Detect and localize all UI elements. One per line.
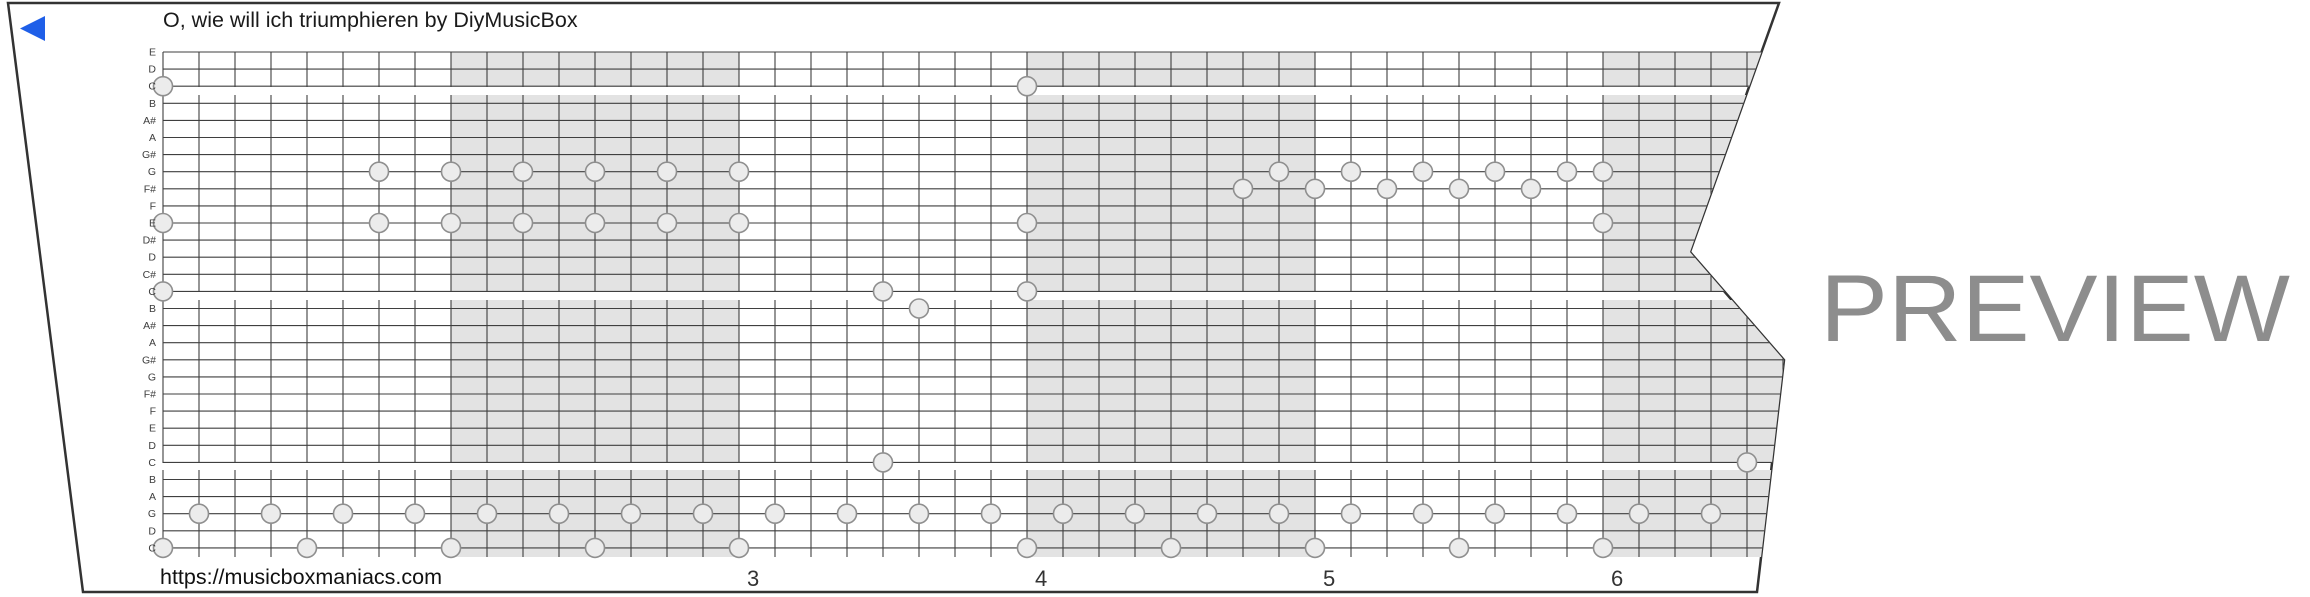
note-hole: [622, 504, 641, 523]
row-label: F#: [144, 389, 156, 401]
note-hole: [550, 504, 569, 523]
note-hole: [514, 214, 533, 233]
note-hole: [514, 162, 533, 181]
note-hole: [1594, 214, 1613, 233]
row-label: G: [148, 166, 156, 178]
note-hole: [694, 504, 713, 523]
note-hole: [154, 77, 173, 96]
row-label: D: [148, 440, 156, 452]
row-label: C: [148, 457, 156, 469]
note-hole: [1702, 504, 1721, 523]
note-hole: [730, 214, 749, 233]
note-hole: [766, 504, 785, 523]
note-hole: [1486, 162, 1505, 181]
note-hole: [1054, 504, 1073, 523]
note-hole: [874, 282, 893, 301]
note-hole: [586, 538, 605, 557]
row-label: E: [149, 423, 156, 435]
footer-url: https://musicboxmaniacs.com: [160, 565, 442, 589]
note-hole: [1414, 504, 1433, 523]
note-hole: [1270, 162, 1289, 181]
note-hole: [1558, 162, 1577, 181]
note-hole: [1018, 77, 1037, 96]
row-label: A#: [143, 320, 156, 332]
note-hole: [910, 299, 929, 318]
row-label: D: [148, 525, 156, 537]
note-hole: [1450, 538, 1469, 557]
note-hole: [370, 214, 389, 233]
note-hole: [838, 504, 857, 523]
row-label: G: [148, 508, 156, 520]
row-label: E: [149, 218, 156, 230]
note-hole: [586, 214, 605, 233]
note-hole: [1306, 538, 1325, 557]
preview-watermark: PREVIEW: [1820, 256, 2290, 362]
row-label: C#: [143, 269, 157, 281]
note-hole: [1342, 504, 1361, 523]
row-label: D#: [143, 235, 157, 247]
note-hole: [1198, 504, 1217, 523]
row-label: F: [150, 406, 156, 418]
row-label: F: [150, 200, 156, 212]
note-hole: [190, 504, 209, 523]
note-hole: [1162, 538, 1181, 557]
note-hole: [1450, 179, 1469, 198]
note-hole: [1594, 162, 1613, 181]
row-label: C: [148, 81, 156, 93]
strip-title: O, wie will ich triumphieren by DiyMusic…: [163, 8, 578, 32]
row-label: C: [148, 542, 156, 554]
note-hole: [1018, 214, 1037, 233]
row-label: F#: [144, 183, 156, 195]
row-label: G#: [142, 149, 156, 161]
row-label: A: [149, 337, 156, 349]
note-hole: [658, 214, 677, 233]
row-label: A: [149, 491, 156, 503]
note-hole: [154, 214, 173, 233]
note-hole: [982, 504, 1001, 523]
note-hole: [370, 162, 389, 181]
note-hole: [1738, 453, 1757, 472]
note-hole: [154, 538, 173, 557]
note-hole: [262, 504, 281, 523]
note-hole: [442, 214, 461, 233]
row-label: A: [149, 132, 156, 144]
row-label: G: [148, 371, 156, 383]
note-hole: [586, 162, 605, 181]
music-box-strip-preview: EDCBA#AG#GF#FED#DC#CBA#AG#GF#FEDCBAGDC 3…: [0, 0, 2310, 597]
measure-number: 3: [747, 566, 759, 591]
measure-number: 6: [1611, 566, 1623, 591]
note-hole: [1558, 504, 1577, 523]
row-label: E: [149, 47, 156, 59]
note-hole: [1342, 162, 1361, 181]
row-label: D: [148, 64, 156, 76]
note-hole: [1018, 538, 1037, 557]
note-hole: [874, 453, 893, 472]
note-hole: [154, 282, 173, 301]
note-hole: [1522, 179, 1541, 198]
note-hole: [478, 504, 497, 523]
note-hole: [334, 504, 353, 523]
row-label: D: [148, 252, 156, 264]
note-hole: [730, 162, 749, 181]
note-hole: [1414, 162, 1433, 181]
measure-number: 4: [1035, 566, 1047, 591]
note-hole: [298, 538, 317, 557]
row-label: B: [149, 98, 156, 110]
note-hole: [658, 162, 677, 181]
note-hole: [1018, 282, 1037, 301]
note-hole: [1126, 504, 1145, 523]
note-hole: [442, 162, 461, 181]
note-hole: [1630, 504, 1649, 523]
note-hole: [1486, 504, 1505, 523]
row-label: B: [149, 474, 156, 486]
note-hole: [1378, 179, 1397, 198]
row-label: B: [149, 303, 156, 315]
measure-number: 5: [1323, 566, 1335, 591]
note-hole: [406, 504, 425, 523]
row-label: C: [148, 286, 156, 298]
note-hole: [910, 504, 929, 523]
row-label: G#: [142, 354, 156, 366]
note-hole: [730, 538, 749, 557]
note-hole: [442, 538, 461, 557]
note-hole: [1270, 504, 1289, 523]
note-hole: [1234, 179, 1253, 198]
note-hole: [1306, 179, 1325, 198]
music-strip-preview-page: EDCBA#AG#GF#FED#DC#CBA#AG#GF#FEDCBAGDC 3…: [0, 0, 2310, 597]
strip-paper: [8, 3, 1784, 592]
note-hole: [1594, 538, 1613, 557]
row-label: A#: [143, 115, 156, 127]
